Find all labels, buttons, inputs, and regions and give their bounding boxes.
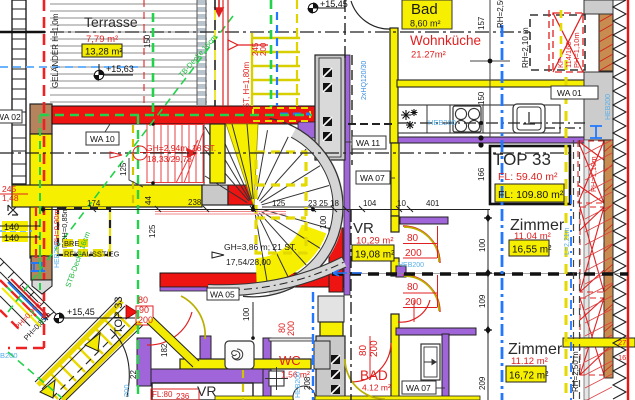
svg-text:200: 200 — [122, 384, 131, 397]
svg-text:80: 80 — [138, 295, 148, 305]
svg-text:WA 05: WA 05 — [210, 290, 235, 300]
svg-text:200: 200 — [286, 321, 296, 336]
svg-text:FL:80: FL:80 — [152, 390, 173, 399]
svg-text:+15,63: +15,63 — [106, 64, 134, 74]
svg-text:100: 100 — [478, 238, 487, 252]
svg-text:FL: 109.80 m²: FL: 109.80 m² — [498, 189, 564, 201]
svg-text:GH=2,94m; 18 ST.: GH=2,94m; 18 ST. — [146, 143, 216, 153]
svg-text:GELÄNDER H=1,0m: GELÄNDER H=1,0m — [51, 13, 60, 88]
svg-text:236: 236 — [176, 392, 190, 400]
svg-text:4.12 m²: 4.12 m² — [362, 383, 391, 393]
svg-text:150: 150 — [477, 91, 486, 105]
svg-text:HEB200: HEB200 — [295, 372, 302, 398]
svg-text:WA 11: WA 11 — [356, 138, 380, 148]
svg-text:16,55 m²: 16,55 m² — [512, 245, 552, 256]
svg-text:RH=2,50 m: RH=2,50 m — [571, 351, 580, 392]
svg-text:10,29 m²: 10,29 m² — [356, 236, 394, 247]
svg-text:401: 401 — [426, 199, 440, 208]
svg-text:1,48: 1,48 — [2, 193, 19, 203]
svg-text:L=2,21m: L=2,21m — [564, 227, 571, 255]
svg-text:+15,45: +15,45 — [320, 0, 348, 9]
svg-text:166: 166 — [477, 167, 486, 181]
svg-text:182: 182 — [160, 343, 169, 357]
svg-text:11.12 m²: 11.12 m² — [511, 356, 548, 367]
svg-text:WA 07: WA 07 — [360, 173, 385, 183]
svg-text:21.27m²: 21.27m² — [411, 50, 446, 61]
svg-text:HEB200: HEB200 — [54, 242, 61, 268]
svg-text:174: 174 — [87, 199, 101, 208]
svg-text:TOP 33: TOP 33 — [493, 150, 551, 169]
svg-text:18: 18 — [330, 199, 339, 208]
svg-text:WA 01: WA 01 — [557, 88, 582, 98]
svg-text:100: 100 — [319, 215, 328, 229]
svg-text:11.04 m²: 11.04 m² — [514, 231, 551, 242]
svg-text:RFK-AUSSTIEG: RFK-AUSSTIEG — [64, 250, 120, 259]
svg-text:200: 200 — [138, 315, 153, 325]
svg-text:13,28 m²: 13,28 m² — [85, 47, 123, 58]
svg-text:BAD: BAD — [360, 368, 388, 383]
svg-text:RH=2,10 m: RH=2,10 m — [521, 27, 530, 68]
svg-text:7,79 m²: 7,79 m² — [86, 34, 118, 45]
svg-text:200: 200 — [259, 42, 268, 56]
svg-text:125: 125 — [272, 199, 286, 208]
svg-text:22: 22 — [129, 370, 138, 379]
svg-text:80: 80 — [407, 233, 419, 244]
svg-text:WA 07: WA 07 — [406, 383, 431, 393]
svg-text:WA 02: WA 02 — [0, 112, 21, 122]
svg-text:Bad: Bad — [411, 1, 438, 18]
svg-text:208: 208 — [303, 376, 312, 390]
svg-text:90: 90 — [139, 305, 149, 315]
svg-text:140: 140 — [4, 222, 19, 232]
svg-text:WA 10: WA 10 — [90, 134, 115, 144]
svg-text:209: 209 — [478, 376, 487, 390]
svg-text:HEB200: HEB200 — [605, 94, 612, 120]
svg-text:10: 10 — [397, 199, 406, 208]
svg-text:WC: WC — [279, 353, 301, 368]
svg-text:238: 238 — [188, 198, 202, 207]
svg-text:200: 200 — [405, 297, 422, 308]
svg-text:+15,45: +15,45 — [67, 307, 95, 317]
svg-text:109: 109 — [478, 294, 487, 308]
svg-text:PH=1,10m: PH=1,10m — [589, 156, 598, 192]
svg-text:19,08 m²: 19,08 m² — [355, 250, 395, 261]
svg-text:200: 200 — [369, 340, 380, 357]
svg-text:VR: VR — [197, 383, 216, 399]
svg-text:HEB200: HEB200 — [428, 118, 456, 127]
svg-text:RH=2,50: RH=2,50 — [496, 0, 505, 28]
svg-text:B200: B200 — [0, 351, 18, 360]
svg-text:Wohnküche: Wohnküche — [410, 33, 481, 48]
svg-text:16: 16 — [618, 353, 626, 362]
svg-text:125: 125 — [119, 162, 128, 176]
svg-text:FL: 59.40 m²: FL: 59.40 m² — [498, 171, 558, 183]
svg-text:PH=1,10m: PH=1,10m — [572, 32, 581, 68]
svg-text:Terrasse: Terrasse — [84, 14, 138, 30]
svg-text:GH=3,86 m; 21 ST.: GH=3,86 m; 21 ST. — [224, 242, 297, 252]
svg-text:25: 25 — [319, 199, 328, 208]
svg-text:1 ST, H=1,80m: 1 ST, H=1,80m — [242, 62, 251, 115]
svg-text:200: 200 — [405, 248, 422, 259]
svg-text:VR: VR — [353, 220, 374, 237]
svg-text:2xHQ120/30: 2xHQ120/30 — [361, 61, 368, 100]
svg-text:TOP 33: TOP 33 — [113, 296, 125, 334]
svg-text:27: 27 — [618, 338, 626, 347]
svg-text:80: 80 — [358, 344, 369, 356]
svg-text:44: 44 — [144, 196, 153, 205]
svg-text:8,60 m²: 8,60 m² — [410, 19, 441, 29]
svg-text:80: 80 — [407, 282, 419, 293]
svg-text:17,54/28,00: 17,54/28,00 — [226, 257, 271, 267]
svg-text:HEB200: HEB200 — [398, 262, 424, 269]
svg-text:125: 125 — [148, 224, 157, 238]
svg-text:16,72 m²: 16,72 m² — [509, 371, 549, 382]
svg-text:140: 140 — [4, 233, 19, 243]
svg-text:100: 100 — [242, 307, 251, 321]
svg-text:157: 157 — [477, 16, 486, 30]
svg-text:23: 23 — [308, 199, 317, 208]
svg-text:150: 150 — [143, 34, 152, 48]
svg-text:18,33/29,73: 18,33/29,73 — [147, 154, 192, 164]
svg-text:104: 104 — [363, 199, 377, 208]
